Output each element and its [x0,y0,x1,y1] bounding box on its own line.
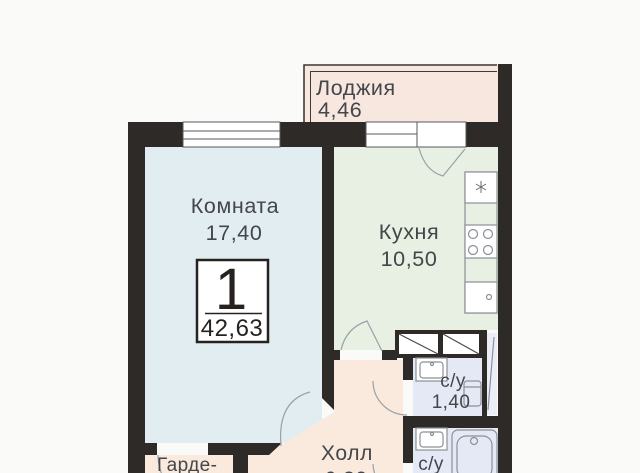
kitchen-label: Кухня [379,220,440,244]
wardrobe-label: Гарде- [157,455,217,473]
kitchen-counter [465,172,497,313]
bathroom-2-sink-icon [416,428,447,450]
badge-rooms-count: 1 [215,257,247,322]
badge-total-area: 42,63 [201,315,264,342]
hall-label: Холл [321,442,373,465]
loggia-label: Лоджия [316,76,396,100]
hall-area: 6,30 [324,468,367,473]
bathroom-1-area: 1,40 [432,392,471,413]
living-room-area: 17,40 [206,221,263,245]
stove-icon [465,225,497,258]
kitchen-area: 10,50 [381,247,438,271]
window-icon [183,122,280,147]
living-room-label: Комната [191,194,279,218]
balcony-window-door-icon [366,122,466,147]
apartment-badge: 1 42,63 [197,257,268,342]
bathroom-2-label: с/у [418,454,444,473]
bathroom-1-label: с/у [440,371,466,392]
loggia-area: 4,46 [318,98,362,122]
floor-plan: 1 42,63 Лоджия 4,46 Комната 17,40 Кухня … [0,0,640,473]
appliance-icon [465,282,497,313]
kitchen-sink-icon [465,172,497,203]
